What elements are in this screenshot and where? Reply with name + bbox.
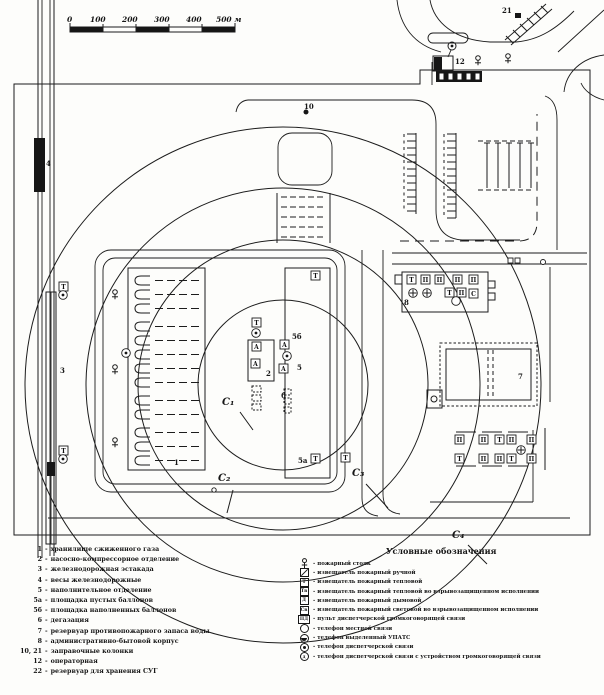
- filling-column-21-mark: [515, 13, 521, 18]
- svg-text:А: А: [253, 361, 258, 368]
- legend-item: 7-резервуар противопожарного запаса воды: [14, 628, 304, 638]
- map-label-pump: 2: [266, 370, 271, 377]
- svg-text:Т: Т: [61, 448, 66, 455]
- svg-text:С: С: [471, 291, 476, 298]
- zone-label-c4: С₄: [452, 531, 464, 541]
- pump-shed: [427, 390, 442, 408]
- thermal-detector-icon: Т: [252, 318, 261, 327]
- svg-text:П: П: [497, 456, 503, 463]
- fire-detector-icon: П: [527, 435, 536, 444]
- phone-dispatcher-gg-icon: д: [298, 652, 310, 661]
- legend-item: Т -извещатель пожарный тепловой: [298, 578, 602, 587]
- fire-detector-icon: П: [507, 435, 516, 444]
- phone-upats-icon: [423, 289, 432, 298]
- thermal-detector-icon: Т: [407, 275, 416, 284]
- legend-item: -извещатель пожарный ручной: [298, 568, 602, 577]
- legend-item: Д -извещатель пожарный дымовой: [298, 596, 602, 605]
- map-label-admin: 8: [404, 299, 409, 306]
- building-storage: [128, 268, 205, 470]
- map-label-scales: 4: [46, 160, 51, 167]
- fire-detector-icon: П: [421, 275, 430, 284]
- map-label-degas: 6: [281, 392, 286, 399]
- thermal-ex-detector-icon: Тв: [298, 587, 310, 596]
- scale-label: 100: [90, 16, 106, 24]
- map-icons: Т Т Т Т А А А А Т Т Т П П П П Т П С П П …: [59, 54, 546, 492]
- phone-local-icon: [452, 297, 461, 306]
- svg-text:П: П: [437, 277, 443, 284]
- zone-label-c1: С₁: [222, 398, 234, 408]
- svg-text:А: А: [282, 342, 287, 349]
- map-label-storage: 1: [174, 459, 179, 466]
- legend-item: Тв -извещатель пожарный тепловой во взры…: [298, 587, 602, 596]
- map-label-full-area: 5б: [292, 333, 302, 340]
- thermal-detector-icon: Т: [59, 282, 68, 291]
- svg-text:А: А: [281, 366, 286, 373]
- auto-detector-icon: А: [251, 359, 260, 368]
- fire-detector-icon: П: [435, 275, 444, 284]
- map-label-trestle: 3: [60, 367, 65, 374]
- phone-dispatcher-icon: [59, 291, 68, 300]
- legend-item: 12-операторная: [14, 658, 304, 668]
- scale-label: 300: [154, 16, 170, 24]
- svg-text:Т: Т: [313, 273, 318, 280]
- thermal-detector-icon: Т: [455, 454, 464, 463]
- thermal-detector-icon: Т: [298, 578, 310, 587]
- svg-text:П: П: [471, 277, 477, 284]
- svg-text:Т: Т: [447, 290, 452, 297]
- legend-item: -пожарный стояк: [298, 559, 602, 568]
- legend-item: 10, 21-заправочные колонки: [14, 648, 304, 658]
- smoke-detector-icon: Д: [298, 596, 310, 605]
- thermal-detector-icon: Т: [311, 271, 320, 280]
- railway-scales: [34, 138, 45, 192]
- railway-tracks: [34, 0, 56, 558]
- svg-text:П: П: [459, 290, 465, 297]
- zone-label-c3: С₃: [352, 469, 364, 479]
- phone-local-icon: [298, 624, 310, 633]
- legend-item: -телефон диспетчерской связи: [298, 643, 602, 652]
- legend-symbols: Условные обозначения -пожарный стояк -из…: [298, 546, 602, 661]
- map-label-column21: 21: [502, 7, 512, 14]
- scale-label: 500 м: [216, 16, 241, 24]
- fire-detector-icon: П: [453, 275, 462, 284]
- map-label-empty-area: 5а: [298, 457, 307, 464]
- building-filling: [248, 268, 330, 478]
- map-label-column10: 10: [304, 103, 314, 110]
- legend-item: 1-хранилище сжиженного газа: [14, 546, 304, 556]
- legend-item: -телефон местной связи: [298, 624, 602, 633]
- phone-local-icon: [212, 488, 216, 492]
- legend-numbered-list: 1-хранилище сжиженного газа 2-насосно-ко…: [14, 546, 304, 678]
- phone-dispatcher-icon: [252, 329, 261, 338]
- legend-item: 8-административно-бытовой корпус: [14, 638, 304, 648]
- svg-text:А: А: [254, 344, 259, 351]
- fire-detector-icon: П: [469, 275, 478, 284]
- svg-text:Т: Т: [254, 320, 259, 327]
- svg-text:П: П: [529, 456, 535, 463]
- legend-item: 6-дегазация: [14, 617, 304, 627]
- svg-text:Т: Т: [509, 456, 514, 463]
- scale-bar: [70, 23, 235, 32]
- legend-item: 5а-площадка пустых баллонов: [14, 597, 304, 607]
- fire-detector-icon: П: [479, 435, 488, 444]
- site-fence: [14, 70, 590, 535]
- thermal-detector-icon: Т: [507, 454, 516, 463]
- building-operator: [433, 56, 453, 71]
- phone-local-icon: [541, 260, 546, 265]
- svg-text:П: П: [455, 277, 461, 284]
- auto-detector-icon: А: [279, 364, 288, 373]
- legend-item: -телефон выделенный УПАТС: [298, 633, 602, 642]
- phone-upats-icon: [409, 289, 418, 298]
- auto-detector-icon: А: [252, 342, 261, 351]
- phone-dispatcher-icon: [298, 643, 310, 652]
- svg-text:Т: Т: [409, 277, 414, 284]
- svg-text:Т: Т: [343, 455, 348, 462]
- parking-areas: [277, 96, 557, 250]
- phone-upats-icon: [517, 446, 526, 455]
- svg-text:П: П: [481, 437, 487, 444]
- svg-text:П: П: [481, 456, 487, 463]
- phone-dispatcher-icon: [283, 352, 292, 361]
- thermal-detector-icon: Т: [311, 454, 320, 463]
- railway-trestle: [46, 292, 56, 544]
- fire-detector-icon: П: [455, 435, 464, 444]
- fire-detector-icon: П: [527, 454, 536, 463]
- site-plan: 0 100 200 300 400 500 м 1 2 3 4 5 5а 5б …: [0, 0, 604, 695]
- legend-item: 22-резервуар для хранения СУГ: [14, 668, 304, 678]
- phone-dispatcher-icon: [122, 349, 131, 358]
- map-label-reservoir: 7: [518, 373, 523, 380]
- legend-item: 3-железнодорожная эстакада: [14, 566, 304, 576]
- svg-text:Т: Т: [313, 456, 318, 463]
- roads: [48, 0, 604, 518]
- svg-text:П: П: [457, 437, 463, 444]
- building-admin: [395, 272, 495, 312]
- zone-label-c2: С₂: [218, 474, 230, 484]
- legend-item: Св -извещатель пожарный световой во взры…: [298, 605, 602, 614]
- map-label-operator: 12: [455, 58, 465, 65]
- legend-item: 4-весы железнодорожные: [14, 577, 304, 587]
- manual-call-point-icon: [298, 568, 310, 577]
- map-label-filling: 5: [297, 364, 302, 371]
- fire-detector-icon: П: [479, 454, 488, 463]
- thermal-detector-icon: Т: [59, 446, 68, 455]
- legend-item: 2-насосно-компрессорное отделение: [14, 556, 304, 566]
- scale-label: 200: [122, 16, 138, 24]
- scale-label: 0: [67, 16, 72, 24]
- phone-upats-icon: [298, 634, 310, 643]
- svg-text:П: П: [509, 437, 515, 444]
- light-ex-detector-icon: Св: [298, 606, 310, 615]
- legend-item: 5б-площадка наполненных баллонов: [14, 607, 304, 617]
- thermal-detector-icon: Т: [341, 453, 350, 462]
- svg-text:Т: Т: [61, 284, 66, 291]
- gate-area: [304, 13, 522, 115]
- svg-text:Т: Т: [497, 437, 502, 444]
- fire-detector-icon: П: [495, 454, 504, 463]
- phone-dispatcher-icon: [59, 455, 68, 464]
- legend-item: д -телефон диспетчерской связи с устройс…: [298, 652, 602, 661]
- svg-text:П: П: [529, 437, 535, 444]
- thermal-detector-icon: Т: [445, 288, 454, 297]
- svg-text:П: П: [423, 277, 429, 284]
- scale-label: 400: [186, 16, 202, 24]
- legend-item: ПД -пульт диспетчерской громкоговорящей …: [298, 615, 602, 624]
- fire-detector-icon: П: [457, 288, 466, 297]
- thermal-detector-icon: Т: [495, 435, 504, 444]
- legend-item: 5-наполнительное отделение: [14, 587, 304, 597]
- dispatcher-panel-icon: ПД: [298, 615, 310, 624]
- legend-title: Условные обозначения: [386, 546, 602, 556]
- auto-detector-icon: А: [280, 340, 289, 349]
- light-detector-icon: С: [469, 289, 478, 298]
- svg-text:Т: Т: [457, 456, 462, 463]
